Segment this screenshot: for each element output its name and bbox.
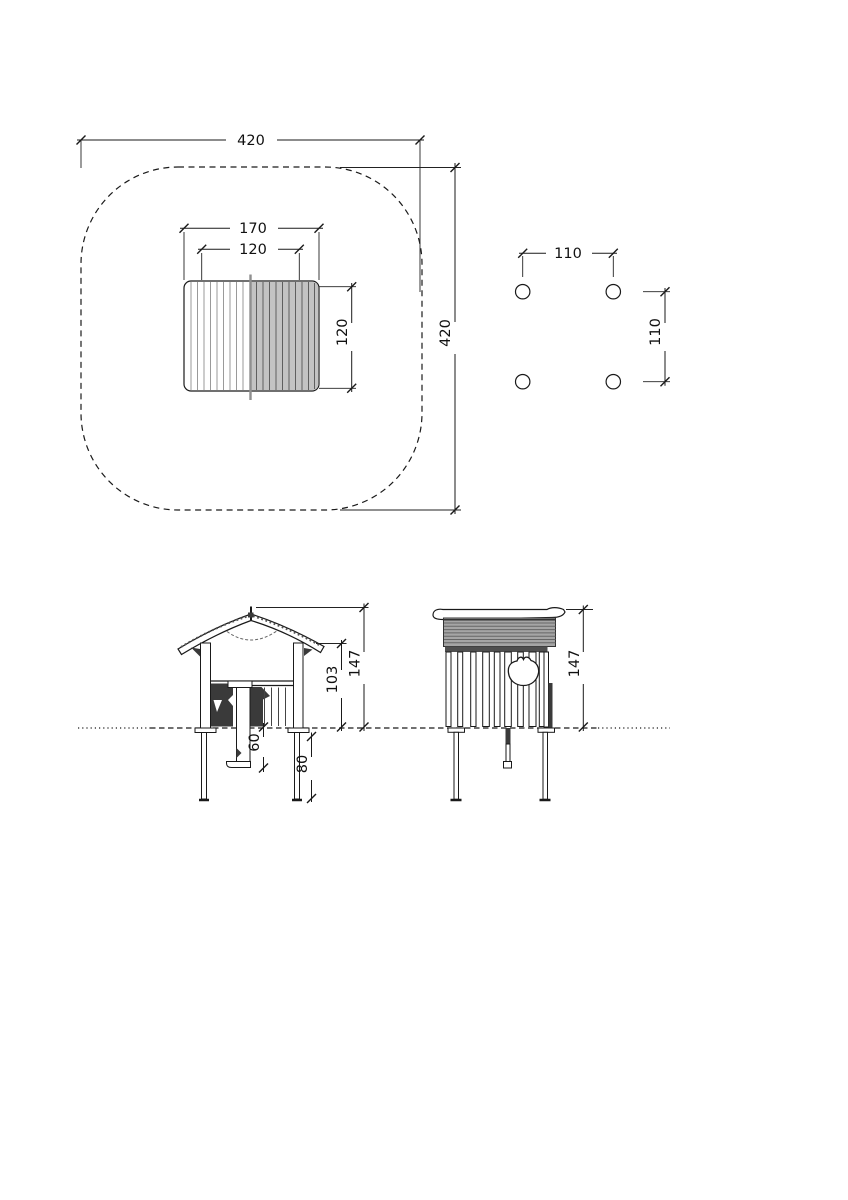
dim-label-house-width: 120 [239, 242, 267, 258]
side-fascia [445, 647, 548, 653]
post-circle [516, 285, 530, 299]
technical-drawing: 420 420 [0, 0, 848, 1200]
apple-window [508, 657, 538, 685]
front-post-right [294, 643, 304, 729]
dim-post-spacing-depth: 110 [643, 287, 670, 386]
dim-post-spacing-width: 110 [518, 246, 618, 277]
post-circle [516, 375, 530, 389]
dim-label-side-total-height: 147 [567, 650, 583, 678]
dim-label-post-spacing-width: 110 [554, 246, 582, 262]
front-elevation: 147 103 60 80 [178, 603, 369, 803]
buried-post [543, 732, 548, 799]
foot-plate [195, 728, 216, 733]
foot-plate [448, 728, 465, 732]
roof-plan [184, 275, 319, 401]
dim-label-foundation-depth: 80 [295, 755, 311, 773]
post-circle [606, 375, 620, 389]
dim-label-safety-width: 420 [237, 133, 265, 149]
dim-label-roof-width: 170 [239, 221, 267, 237]
foot-plate [538, 728, 555, 732]
side-roof [444, 618, 556, 647]
drawing-canvas: 420 420 [0, 0, 848, 1200]
lower-panel-left [211, 684, 233, 727]
dim-house-depth: 120 [319, 282, 356, 393]
dim-side-total-height: 147 [566, 605, 593, 732]
dim-house-width: 120 [197, 242, 304, 280]
side-ladder-below-ground [504, 728, 512, 768]
dim-label-front-total-height: 147 [348, 650, 364, 678]
plan-view: 420 420 [77, 133, 462, 515]
post-layout: 110 110 [516, 246, 671, 389]
dim-label-wall-height: 103 [325, 666, 341, 694]
front-post-left [201, 643, 211, 729]
side-dark-bar [549, 683, 553, 730]
gable-arch [227, 631, 278, 641]
dim-label-house-depth: 120 [335, 318, 351, 346]
buried-post [454, 732, 459, 799]
dim-label-step-depth: 60 [247, 733, 263, 751]
post-circle [606, 285, 620, 299]
dim-label-safety-depth: 420 [438, 319, 454, 347]
lower-panel-right [250, 687, 270, 727]
buried-post [202, 733, 207, 800]
side-elevation: 147 [433, 605, 593, 800]
dim-label-post-spacing-depth: 110 [648, 318, 664, 346]
dim-safety-width: 420 [77, 133, 425, 292]
dim-safety-depth: 420 [340, 163, 461, 515]
foot-plate [288, 728, 309, 733]
